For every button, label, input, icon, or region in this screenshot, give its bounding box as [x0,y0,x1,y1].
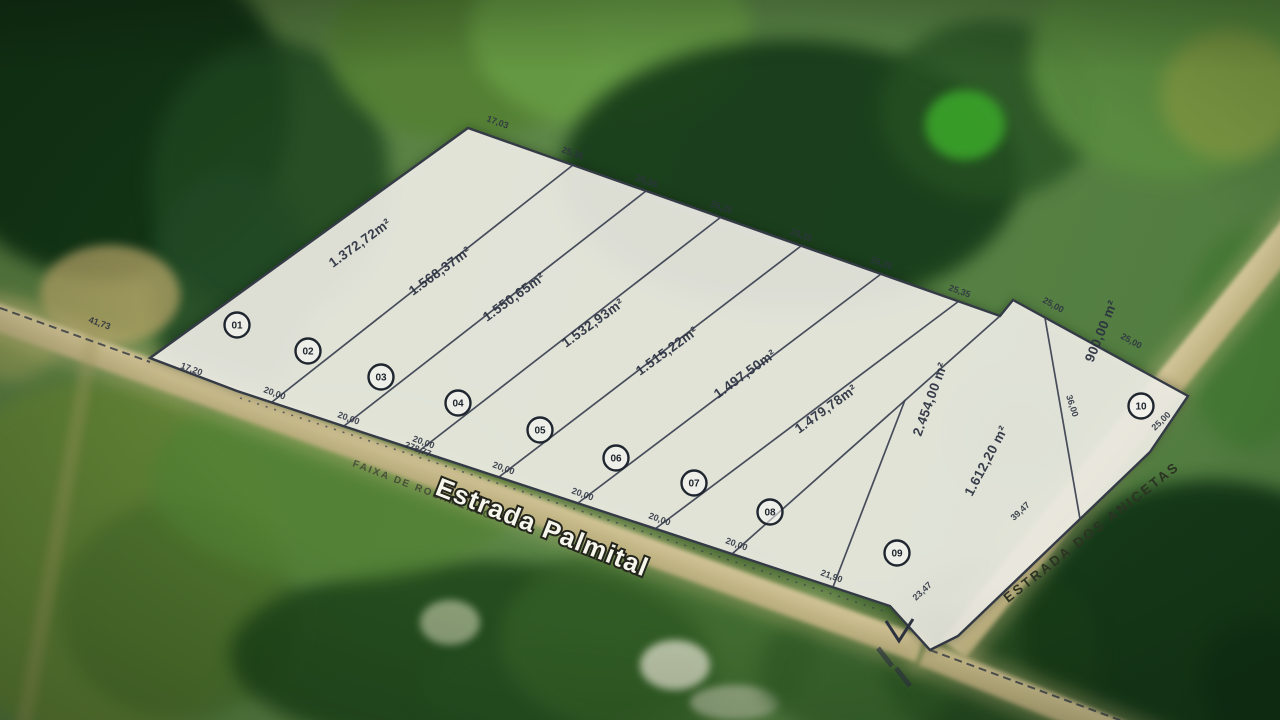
dimension-label: 17,03 [485,113,510,130]
dimension-label: 25,35 [789,226,814,243]
lot-number: 07 [688,479,700,490]
lot-number: 04 [452,399,464,410]
lot-number: 01 [231,321,243,332]
dimension-label: 25,35 [560,144,585,161]
dimension-label: 25,00 [1041,295,1066,315]
lot-number: 03 [375,373,387,384]
lot-number: 02 [302,347,314,358]
lot-number: 10 [1135,402,1147,413]
dimension-label: 25,00 [1119,331,1144,351]
lot-number: 08 [764,508,776,519]
dimension-label: 25,35 [947,282,972,299]
road-annotation-marks [878,648,910,686]
lot-number: 05 [534,426,546,437]
aerial-plat-photo: 011.372,72m²021.568,37m²031.550,65m²041.… [0,0,1280,720]
lot-number: 09 [891,549,903,560]
plat-plan-overlay: 011.372,72m²021.568,37m²031.550,65m²041.… [0,0,1280,720]
dimension-label: 25,35 [869,254,894,271]
lot-number: 06 [610,454,622,465]
dimension-label: 25,35 [709,198,734,215]
dimension-label: 41,73 [87,314,112,331]
